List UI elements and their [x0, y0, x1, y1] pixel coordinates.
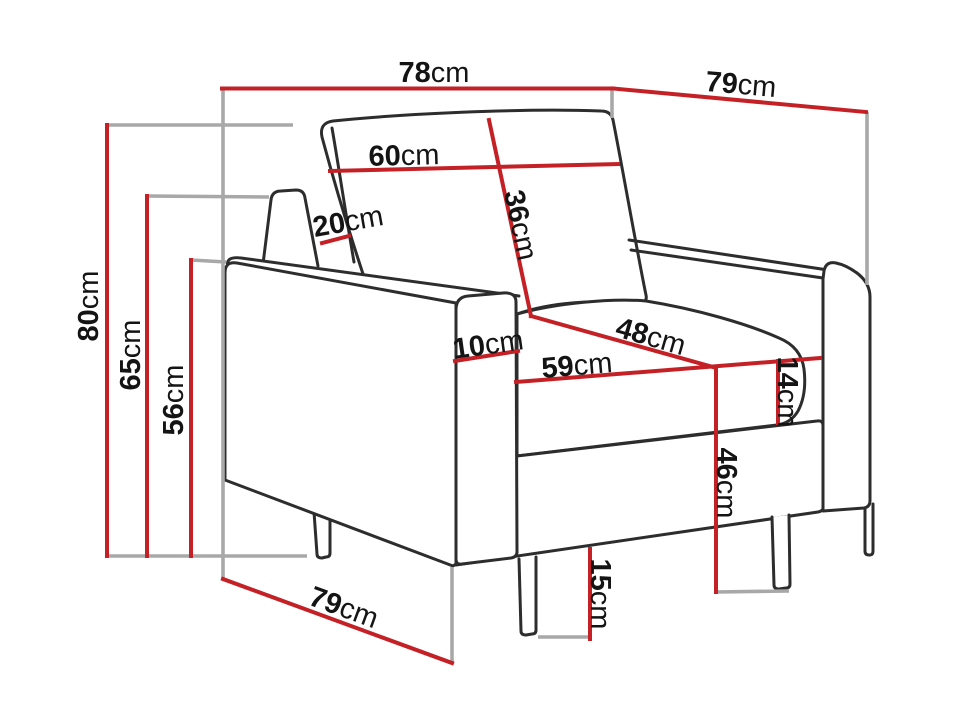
- chair-right-armrest-front: [823, 263, 870, 511]
- extension-65-top: [147, 196, 269, 197]
- chair-left-side-panel: [225, 263, 456, 566]
- chair-leg-front-left: [519, 557, 536, 635]
- extension-46-floor: [716, 591, 789, 592]
- dimension-label-leg-height: 15cm: [584, 559, 616, 630]
- svg-text:59cm: 59cm: [540, 347, 613, 385]
- svg-text:15cm: 15cm: [584, 559, 616, 630]
- svg-text:65cm: 65cm: [115, 320, 147, 391]
- armchair-dimension-diagram: 78cm 79cm 60cm 20cm 36cm 80cm 65cm 56cm …: [0, 0, 953, 715]
- dimension-label-armrest-height: 56cm: [158, 365, 190, 436]
- dimension-label-backrest-cushion-width: 60cm: [368, 139, 440, 173]
- extension-56-top: [191, 260, 226, 262]
- dimension-label-overall-height: 80cm: [73, 271, 105, 342]
- dimension-label-back-height: 65cm: [115, 320, 147, 391]
- svg-text:79cm: 79cm: [305, 581, 383, 635]
- dimension-label-overall-width: 78cm: [399, 57, 470, 89]
- dimension-label-seat-width: 59cm: [540, 347, 613, 385]
- svg-text:14cm: 14cm: [771, 357, 803, 428]
- chair-leg-front-right: [865, 504, 873, 555]
- svg-text:80cm: 80cm: [73, 271, 105, 342]
- svg-text:78cm: 78cm: [399, 57, 470, 89]
- svg-text:60cm: 60cm: [368, 139, 440, 173]
- dimension-label-seat-cushion-thickness: 14cm: [771, 357, 803, 428]
- dimension-label-seat-height: 46cm: [710, 448, 742, 519]
- svg-text:79cm: 79cm: [704, 66, 777, 104]
- svg-text:46cm: 46cm: [710, 448, 742, 519]
- dimension-diagram-page: 78cm 79cm 60cm 20cm 36cm 80cm 65cm 56cm …: [0, 0, 953, 715]
- dimension-label-overall-depth-top: 79cm: [704, 66, 777, 104]
- svg-text:56cm: 56cm: [158, 365, 190, 436]
- dimension-label-overall-depth-bottom: 79cm: [305, 581, 383, 635]
- chair-leg-back-right: [772, 515, 790, 589]
